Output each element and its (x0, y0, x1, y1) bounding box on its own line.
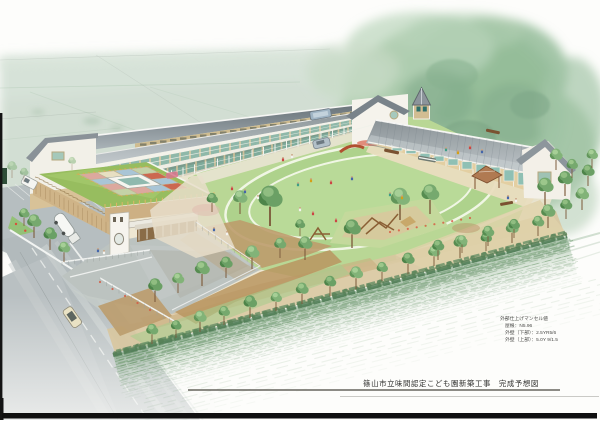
svg-text:外部仕上げマンセル値: 外部仕上げマンセル値 (500, 315, 548, 322)
svg-text:屋根：N5.96: 屋根：N5.96 (505, 322, 533, 329)
svg-text:篠山市立味間認定こども園新築工事 完成予想図: 篠山市立味間認定こども園新築工事 完成予想図 (363, 379, 539, 388)
svg-text:外壁（上部）：5.0Y 9/1.5: 外壁（上部）：5.0Y 9/1.5 (505, 336, 558, 343)
svg-text:外壁（下部）：2.5YR5/6: 外壁（下部）：2.5YR5/6 (505, 329, 557, 336)
